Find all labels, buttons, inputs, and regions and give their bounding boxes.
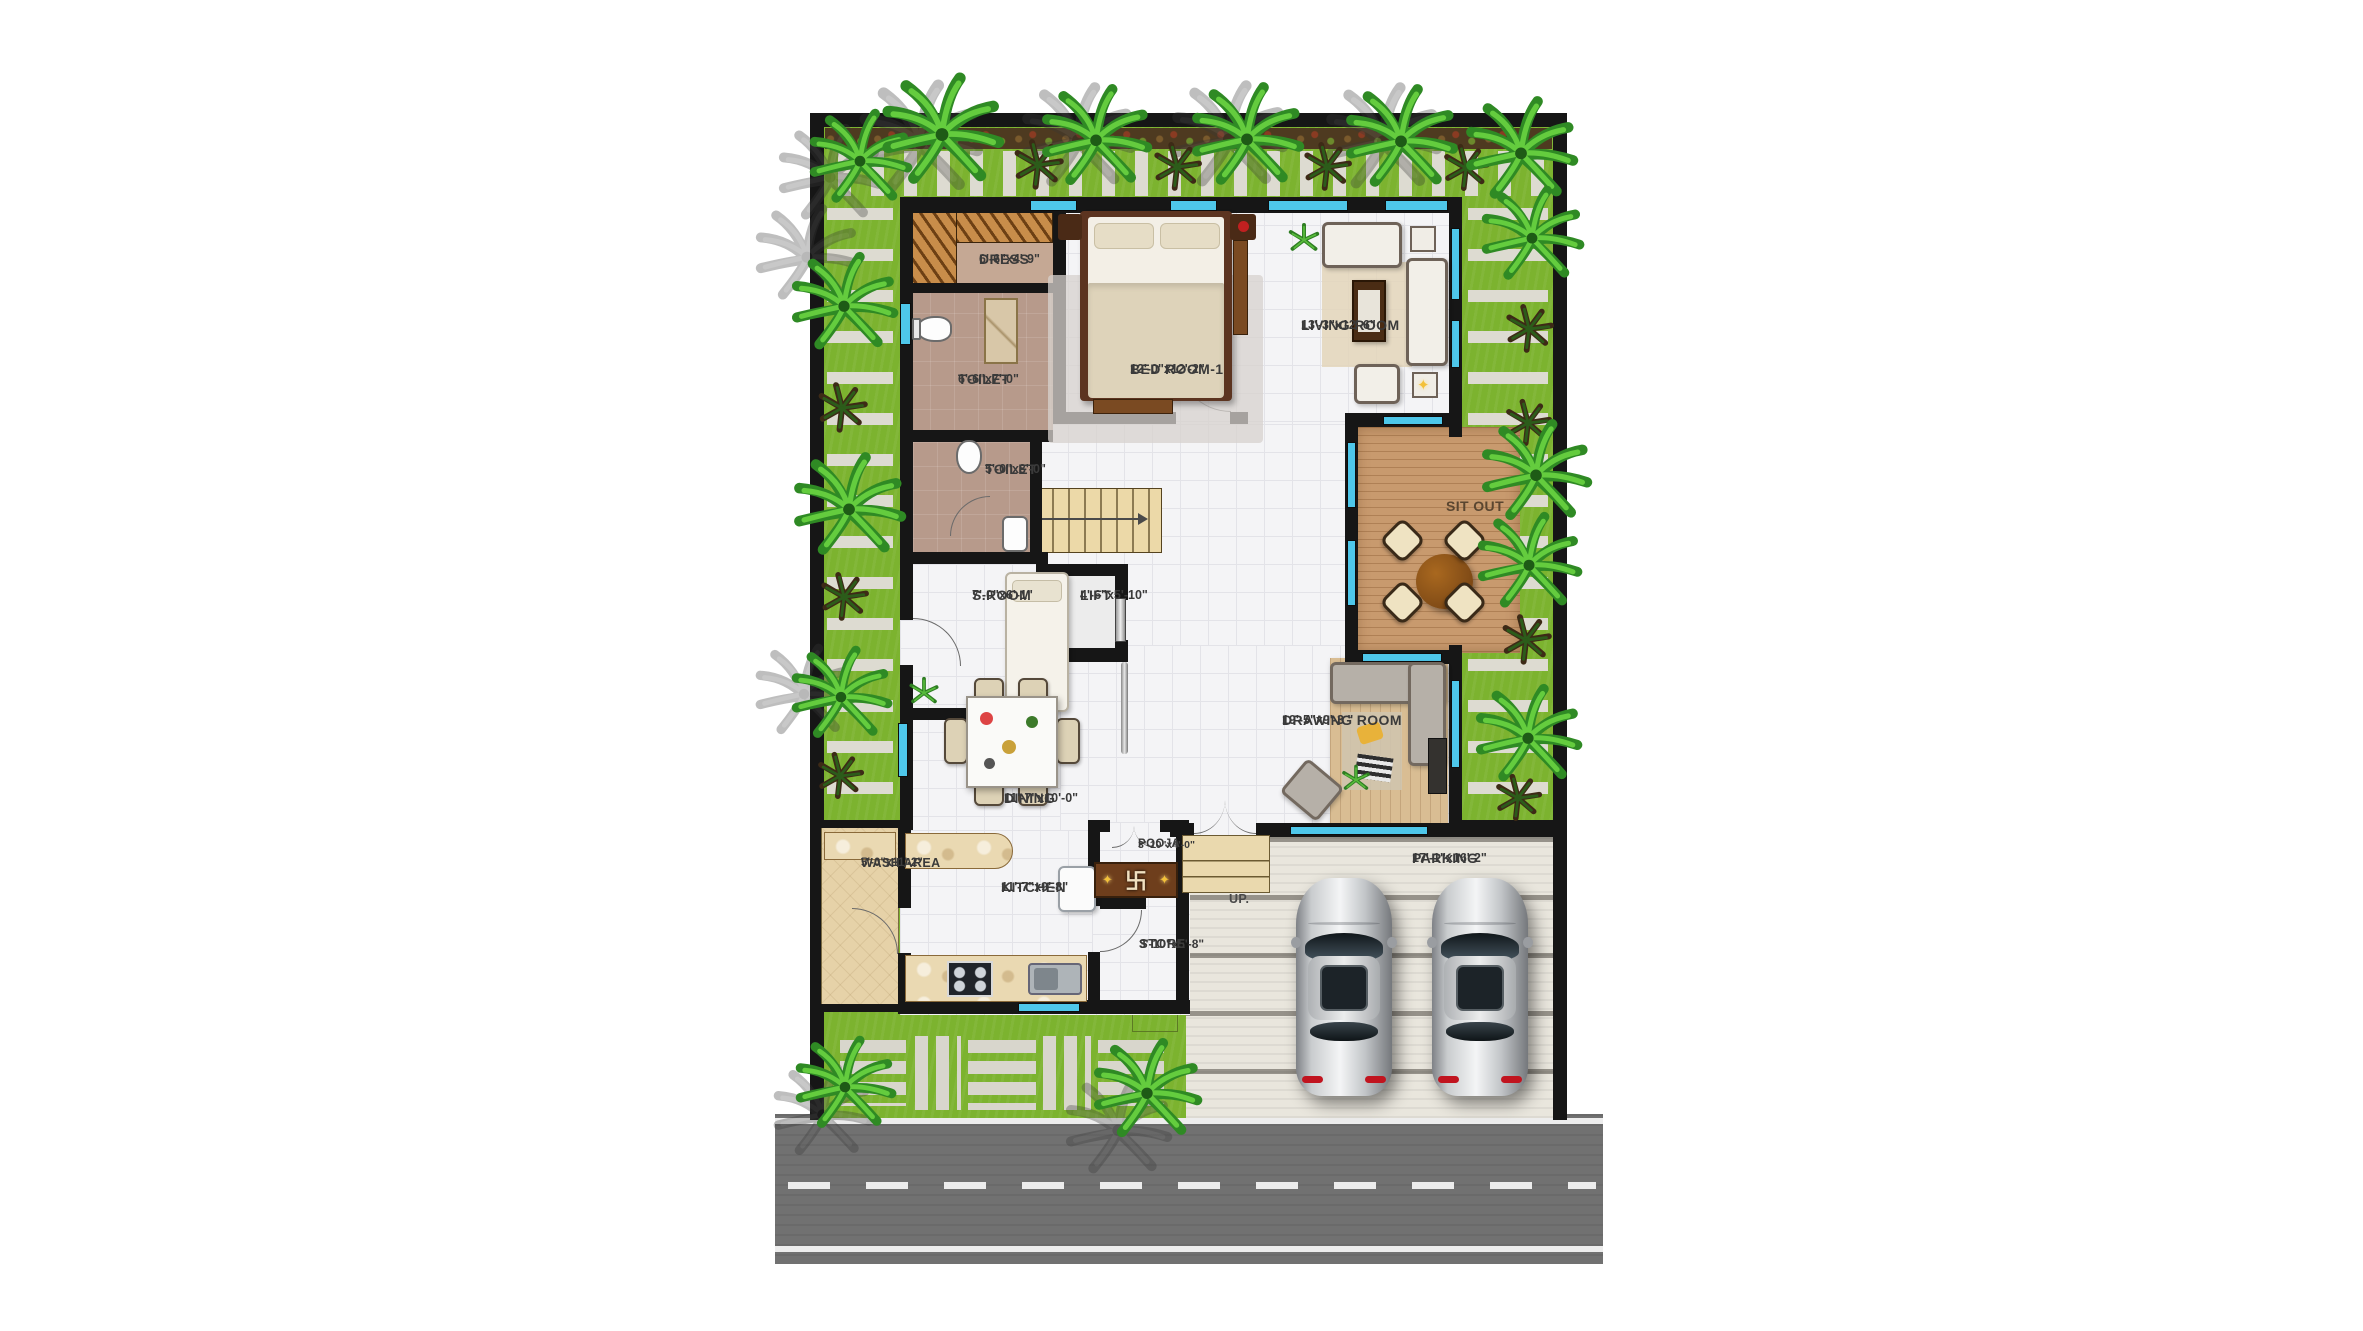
- palm-tree-icon: [1038, 80, 1154, 196]
- living-window-1: [1268, 200, 1348, 211]
- living-tv-unit: [1233, 240, 1248, 335]
- palm-tree-icon: [788, 248, 900, 360]
- sitout-bottom-window: [1362, 653, 1442, 662]
- shrub-icon: [1490, 770, 1546, 826]
- toilet1-wall-bottom: [900, 430, 1053, 442]
- bottom-paving-2: [915, 1036, 961, 1110]
- lift-door: [1115, 598, 1126, 642]
- wash-wall-top: [820, 820, 900, 828]
- bed-pillow-1: [1094, 223, 1154, 249]
- dining-wall-window: [898, 723, 908, 777]
- dining-plate-2: [1026, 716, 1038, 728]
- bedroom-window-2: [1170, 200, 1217, 211]
- stove-icon: [947, 961, 993, 997]
- bed-blanket: [1088, 283, 1224, 398]
- living-window-2: [1385, 200, 1448, 211]
- kitchen-window: [1018, 1003, 1080, 1012]
- dress-toilet-wall: [900, 283, 1053, 293]
- pooja-lamp-right: ✦: [1159, 872, 1170, 888]
- living-side-table-1: [1410, 226, 1436, 252]
- palm-tree-icon: [878, 68, 1006, 196]
- drawing-plant-icon: [1336, 760, 1376, 800]
- palm-tree-icon: [1090, 1034, 1204, 1148]
- floor-plan-canvas: ✦ ✦ 卐 ✦: [0, 0, 2363, 1331]
- sink-basin: [1034, 968, 1058, 990]
- dining-chair-5: [944, 718, 968, 764]
- toilet1-wc: [916, 316, 952, 342]
- bedroom-console: [1093, 399, 1173, 414]
- dining-chair-6: [1056, 718, 1080, 764]
- pooja-wall-top-r: [1160, 820, 1189, 832]
- living-right-window-2: [1451, 320, 1460, 368]
- shrub-icon: [1500, 300, 1558, 358]
- toilet2-wc: [956, 440, 982, 474]
- palm-tree-icon: [788, 642, 894, 748]
- living-table-lamp: ✦: [1417, 376, 1430, 394]
- nightstand-decor: [1238, 221, 1249, 232]
- pooja-store-wall: [1100, 898, 1146, 909]
- drawing-right-window: [1451, 680, 1460, 768]
- shrub-icon: [1496, 610, 1556, 670]
- nightstand-left: [1058, 214, 1082, 240]
- sitout-left-window-1: [1347, 442, 1356, 508]
- drawing-bottom-window: [1290, 826, 1428, 835]
- dining-plate-3: [1002, 740, 1016, 754]
- toilet2-wall-bottom: [900, 552, 1048, 564]
- palm-tree-icon: [1478, 182, 1586, 290]
- bottom-paving-3: [968, 1040, 1036, 1110]
- living-sofa-top: [1322, 222, 1402, 268]
- palm-tree-icon: [792, 1032, 898, 1138]
- palm-tree-icon: [790, 448, 908, 566]
- toilet1-window: [900, 303, 911, 345]
- stairs-arrow: [1042, 518, 1142, 520]
- dining-plate-4: [984, 758, 995, 769]
- shrub-icon: [812, 378, 872, 438]
- pooja-wall-top-l: [1088, 820, 1110, 832]
- living-right-window-1: [1451, 228, 1460, 300]
- dress-wardrobe-top: [955, 208, 1053, 243]
- pooja-shrine: ✦ 卐 ✦: [1094, 862, 1178, 898]
- dining-plate-1: [980, 712, 993, 725]
- swastika-icon: 卐: [1125, 864, 1147, 896]
- road-center-dashed-line: [788, 1182, 1596, 1189]
- pooja-lamp-left: ✦: [1102, 872, 1113, 888]
- car-1: [1296, 878, 1392, 1096]
- dining-plant-icon: [903, 672, 945, 714]
- stairs-arrow-head: [1138, 513, 1148, 525]
- living-sitout-window: [1383, 416, 1443, 425]
- shrub-icon: [812, 748, 868, 804]
- palm-tree-icon: [1474, 508, 1584, 618]
- toilet2-basin: [1002, 516, 1028, 552]
- entry-steps: [1182, 835, 1270, 893]
- living-plant-icon: [1282, 218, 1326, 262]
- drawing-tv-console: [1428, 738, 1447, 794]
- wash-wall-bottom: [820, 1004, 900, 1012]
- car-2: [1432, 878, 1528, 1096]
- toilet1-floor: [906, 289, 1053, 430]
- toilet1-shower: [984, 298, 1018, 364]
- sitout-left-window-2: [1347, 540, 1356, 606]
- bedroom-window-1: [1030, 200, 1077, 211]
- toilet1-wc-tank: [912, 318, 921, 340]
- stair-railing: [1121, 662, 1128, 754]
- palm-tree-icon: [1188, 78, 1306, 196]
- road-bottom-edge-line: [775, 1246, 1603, 1252]
- bed-pillow-2: [1160, 223, 1220, 249]
- living-sofa-right: [1406, 258, 1448, 366]
- shrub-icon: [815, 568, 873, 626]
- living-armchair: [1354, 364, 1400, 404]
